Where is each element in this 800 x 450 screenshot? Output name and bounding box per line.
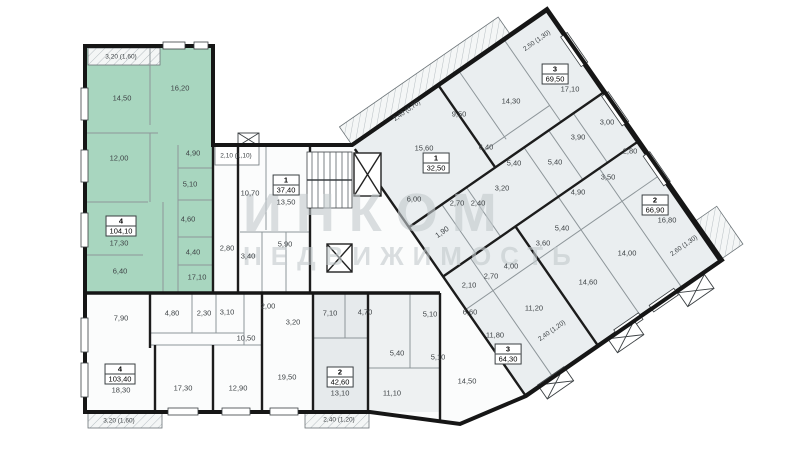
room-area-label: 4,40 bbox=[186, 248, 201, 257]
room-area-label: 17,10 bbox=[561, 85, 580, 94]
balcony-area-label: 3,20 (1,60) bbox=[103, 418, 134, 425]
room-area-label: 17,30 bbox=[174, 384, 193, 393]
balcony-area-label: 2,40 (1,20) bbox=[537, 319, 567, 343]
room-area-label: 2,80 bbox=[220, 244, 235, 253]
room-area-label: 17,30 bbox=[110, 239, 129, 248]
apartment-number: 3 bbox=[496, 345, 521, 355]
apartment-area: 69,50 bbox=[543, 75, 568, 84]
room-area-label: 14,50 bbox=[113, 94, 132, 103]
room-area-label: 17,10 bbox=[188, 273, 207, 282]
apartment-number: 1 bbox=[274, 176, 299, 186]
apartment-number: 1 bbox=[424, 154, 449, 164]
apartment-info-box[interactable]: 4103,40 bbox=[105, 364, 136, 385]
room-area-label: 11,20 bbox=[525, 304, 543, 313]
room-area-label: 14,50 bbox=[458, 377, 477, 386]
room-area-label: 3,10 bbox=[220, 308, 235, 317]
apartment-info-box[interactable]: 242,60 bbox=[327, 367, 354, 388]
room-area-label: 4,00 bbox=[504, 262, 519, 271]
apartment-number: 4 bbox=[106, 365, 135, 375]
apartment-number: 4 bbox=[107, 217, 136, 227]
balcony-area-label: 2,50 (1,30) bbox=[522, 29, 552, 53]
room-area-label: 3,60 bbox=[536, 239, 551, 248]
room-area-label: 13,10 bbox=[331, 389, 350, 398]
balcony-area-label: 3,20 (1,60) bbox=[105, 54, 136, 61]
room-area-label: 4,90 bbox=[186, 149, 201, 158]
room-area-label: 16,20 bbox=[171, 84, 190, 93]
apartment-area: 37,40 bbox=[274, 186, 299, 195]
apartment-info-box[interactable]: 364,30 bbox=[495, 344, 522, 365]
apartment-info-box[interactable]: 369,50 bbox=[542, 64, 569, 85]
apartment-number: 2 bbox=[328, 368, 353, 378]
room-area-label: 3,90 bbox=[571, 133, 586, 142]
apartment-info-box[interactable]: 137,40 bbox=[273, 175, 300, 196]
room-area-label: 6,40 bbox=[113, 267, 128, 276]
room-area-label: 4,80 bbox=[165, 309, 180, 318]
apartment-area: 64,30 bbox=[496, 355, 521, 364]
room-area-label: 5,40 bbox=[390, 349, 405, 358]
room-area-label: 16,80 bbox=[658, 216, 677, 225]
room-area-label: 5,40 bbox=[507, 159, 522, 168]
room-area-label: 3,20 bbox=[495, 184, 510, 193]
apartment-info-box[interactable]: 4104,10 bbox=[106, 216, 137, 237]
room-area-label: 5,90 bbox=[278, 240, 293, 249]
apartment-area: 103,40 bbox=[106, 375, 135, 384]
balcony-area-label: 2,10 (1,10) bbox=[220, 153, 251, 160]
room-area-label: 12,90 bbox=[229, 384, 248, 393]
room-area-label: 1,90 bbox=[433, 224, 450, 240]
labels-layer: 3,20 (1,60)14,5016,2012,004,905,104,6017… bbox=[0, 0, 800, 450]
apartment-info-box[interactable]: 132,50 bbox=[423, 153, 450, 174]
room-area-label: 6,40 bbox=[479, 143, 494, 152]
room-area-label: 4,70 bbox=[358, 308, 373, 317]
room-area-label: 13,50 bbox=[277, 198, 296, 207]
room-area-label: 6,00 bbox=[407, 195, 422, 204]
room-area-label: 3,00 bbox=[600, 118, 615, 127]
room-area-label: 5,10 bbox=[423, 310, 438, 319]
room-area-label: 14,00 bbox=[618, 249, 637, 258]
apartment-number: 3 bbox=[543, 65, 568, 75]
room-area-label: 4,60 bbox=[181, 215, 196, 224]
room-area-label: 3,50 bbox=[601, 173, 616, 182]
room-area-label: 2,70 bbox=[484, 272, 499, 281]
floor-plan-canvas: ИНКОМ НЕДВИЖИМОСТЬ 3,20 (1,60)14,5016,20… bbox=[0, 0, 800, 450]
room-area-label: 18,30 bbox=[112, 386, 131, 395]
room-area-label: 5,10 bbox=[183, 180, 198, 189]
room-area-label: 14,30 bbox=[502, 97, 521, 106]
room-area-label: 2,10 bbox=[462, 281, 477, 290]
room-area-label: 3,40 bbox=[241, 252, 256, 261]
balcony-area-label: 2,40 (0,70) bbox=[392, 99, 422, 123]
apartment-area: 66,90 bbox=[643, 206, 668, 215]
room-area-label: 10,70 bbox=[241, 189, 260, 198]
room-area-label: 19,50 bbox=[278, 373, 297, 382]
room-area-label: 15,60 bbox=[415, 144, 434, 153]
apartment-info-box[interactable]: 266,90 bbox=[642, 195, 669, 216]
balcony-area-label: 2,40 (1,20) bbox=[323, 417, 354, 424]
room-area-label: 2,30 bbox=[197, 309, 212, 318]
apartment-area: 42,60 bbox=[328, 378, 353, 387]
room-area-label: 9,50 bbox=[452, 110, 467, 119]
room-area-label: 7,10 bbox=[323, 309, 338, 318]
room-area-label: 2,70 bbox=[450, 199, 465, 208]
apartment-area: 32,50 bbox=[424, 164, 449, 173]
room-area-label: 2,80 bbox=[623, 147, 638, 156]
room-area-label: 4,90 bbox=[571, 188, 586, 197]
apartment-number: 2 bbox=[643, 196, 668, 206]
room-area-label: 10,50 bbox=[237, 334, 256, 343]
room-area-label: 5,40 bbox=[548, 158, 563, 167]
room-area-label: 12,00 bbox=[110, 154, 129, 163]
room-area-label: 14,60 bbox=[579, 278, 598, 287]
room-area-label: 5,40 bbox=[555, 224, 570, 233]
room-area-label: 3,20 bbox=[286, 318, 301, 327]
room-area-label: 7,90 bbox=[114, 314, 129, 323]
room-area-label: 2,40 bbox=[471, 199, 486, 208]
room-area-label: 5,10 bbox=[431, 353, 446, 362]
room-area-label: 11,10 bbox=[383, 389, 401, 398]
room-area-label: 11,80 bbox=[486, 331, 504, 340]
balcony-area-label: 2,60 (1,30) bbox=[669, 234, 699, 258]
apartment-area: 104,10 bbox=[107, 227, 136, 236]
room-area-label: 6,60 bbox=[463, 308, 478, 317]
room-area-label: 2,00 bbox=[261, 302, 276, 311]
